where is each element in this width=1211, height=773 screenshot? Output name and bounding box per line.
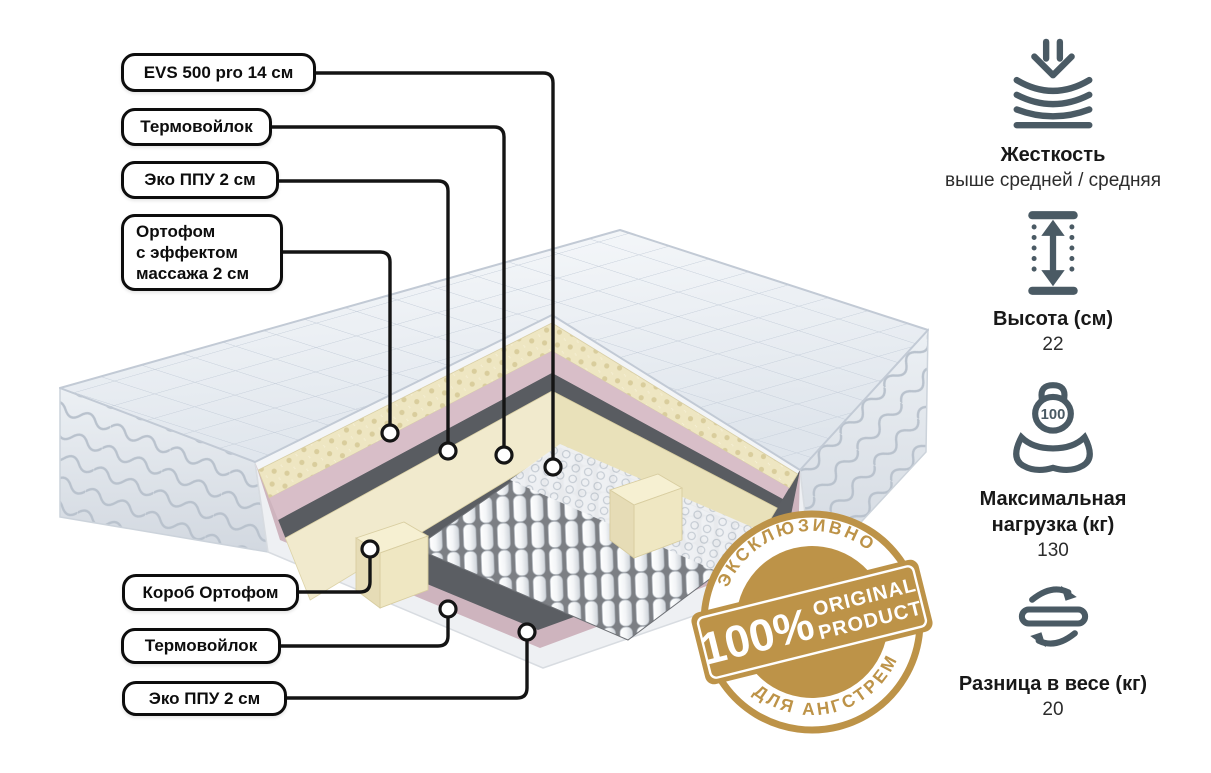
spec-height-title: Высота (см): [993, 306, 1113, 332]
callout-orthofoam-box-label: Короб Ортофом: [142, 582, 278, 603]
max-load-icon: 100: [1001, 376, 1105, 478]
callout-evs-label: EVS 500 pro 14 см: [144, 62, 294, 83]
callout-evs-500: EVS 500 pro 14 см: [121, 53, 316, 92]
callout-thermofelt-top-label: Термовойлок: [140, 116, 252, 137]
callout-thermofelt-top: Термовойлок: [121, 108, 272, 146]
callout-orthofoam-line2: с эффектом: [136, 242, 238, 263]
spec-weight-difference: Разница в весе (кг) 20: [933, 570, 1173, 723]
firmness-icon: [1003, 36, 1103, 134]
spec-weight-diff-title: Разница в весе (кг): [959, 671, 1147, 697]
weight-diff-icon: [1006, 570, 1101, 663]
callout-eco-pu-bottom: Эко ППУ 2 см: [122, 681, 287, 716]
callout-orthofoam-box: Короб Ортофом: [122, 574, 299, 611]
spec-firmness: Жесткость выше средней / средняя: [933, 36, 1173, 194]
spec-firmness-title: Жесткость: [1001, 142, 1106, 168]
spec-weight-diff-value: 20: [1042, 698, 1063, 723]
spec-max-load: 100 Максимальная нагрузка (кг) 130: [933, 376, 1173, 564]
callout-orthofoam-line1: Ортофом: [136, 221, 215, 242]
spec-height-value: 22: [1042, 333, 1063, 358]
spec-firmness-value: выше средней / средняя: [945, 169, 1161, 194]
spec-max-load-title: Максимальная нагрузка (кг): [953, 486, 1153, 538]
callout-thermofelt-bottom-label: Термовойлок: [145, 635, 257, 656]
connector-thermo-bottom: [279, 618, 448, 646]
callout-orthofoam-line3: массажа 2 см: [136, 263, 249, 284]
spec-max-load-value: 130: [1037, 539, 1069, 564]
height-icon: [1007, 208, 1099, 298]
max-load-icon-label: 100: [1041, 407, 1066, 423]
callout-eco-pu-bottom-label: Эко ППУ 2 см: [149, 688, 260, 709]
spec-height: Высота (см) 22: [933, 208, 1173, 358]
callout-thermofelt-bottom: Термовойлок: [121, 628, 281, 664]
connector-eko-bottom: [285, 641, 527, 698]
callout-eco-pu-top: Эко ППУ 2 см: [121, 161, 279, 199]
callout-orthofoam-massage: Ортофом с эффектом массажа 2 см: [121, 214, 283, 291]
mattress-infographic: { "callouts": { "evs": "EVS 500 pro 14 с…: [0, 0, 1211, 773]
callout-eco-pu-top-label: Эко ППУ 2 см: [144, 169, 255, 190]
